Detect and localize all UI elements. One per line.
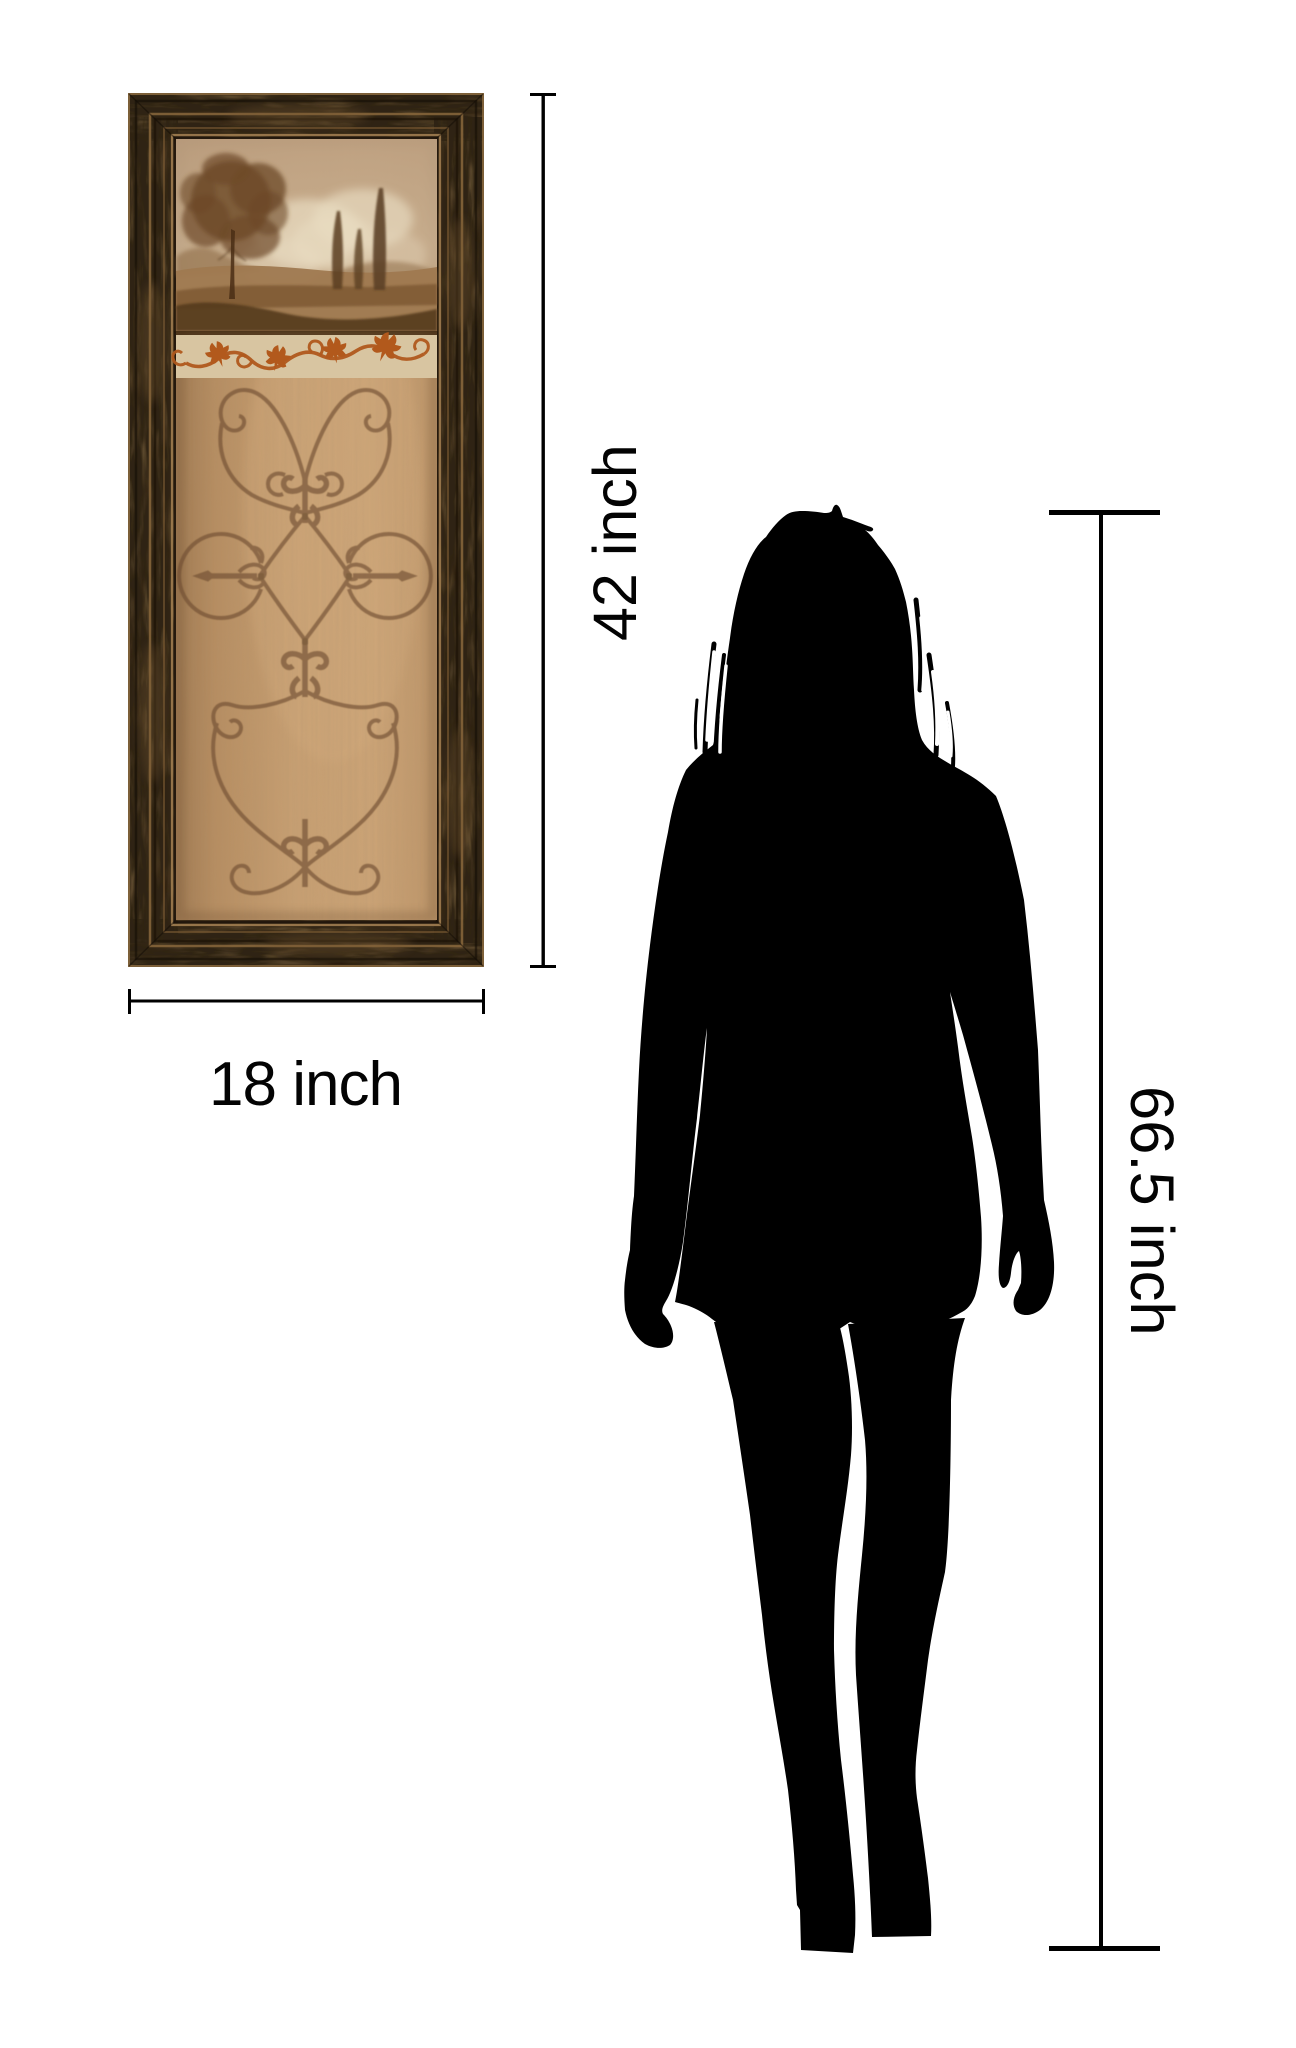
svg-text:18 inch: 18 inch <box>209 1050 402 1119</box>
svg-text:42 inch: 42 inch <box>581 444 649 641</box>
svg-text:66.5 inch: 66.5 inch <box>1117 1086 1186 1336</box>
